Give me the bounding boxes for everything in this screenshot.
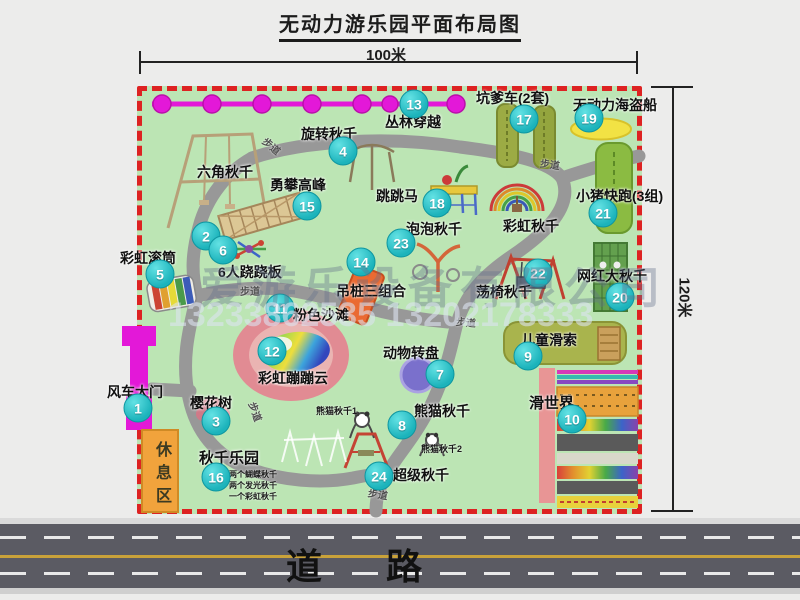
attraction-sublabel-16-1: 两个蝴蝶秋千: [229, 469, 277, 480]
attraction-label-12: 彩虹蹦蹦云: [258, 368, 328, 388]
attraction-label-24: 超级秋千: [393, 465, 449, 485]
walkway-label-3: 步道: [240, 283, 260, 298]
attraction-badge-9: 9: [514, 342, 543, 371]
attraction-label-8: 熊猫秋千: [414, 401, 470, 421]
attraction-badge-15: 15: [293, 192, 322, 221]
attraction-sublabel-8-1: 熊猫秋千1: [316, 404, 357, 417]
attraction-sublabel-16-3: 一个彩虹秋千: [229, 491, 277, 502]
title-bar: 无动力游乐园平面布局图: [0, 8, 800, 42]
attraction-label-11: 粉色沙滩: [293, 305, 349, 325]
attraction-badge-7: 7: [426, 360, 455, 389]
road-label: 道 路: [286, 538, 436, 590]
attraction-label-15: 勇攀高峰: [270, 175, 326, 195]
dimension-label-height: 120米: [675, 278, 696, 326]
dimension-line-top: [140, 61, 637, 63]
attraction-badge-17: 17: [510, 105, 539, 134]
road: 道 路: [0, 518, 800, 594]
attraction-label-20: 网红大秋千: [577, 266, 647, 286]
attraction-label-2: 六角秋千: [197, 162, 253, 182]
attraction-badge-12: 12: [258, 337, 287, 366]
page-title: 无动力游乐园平面布局图: [279, 8, 521, 42]
attraction-badge-10: 10: [558, 405, 587, 434]
attraction-badge-8: 8: [388, 411, 417, 440]
attraction-badge-22: 22: [524, 259, 553, 288]
attraction-badge-1: 1: [124, 394, 153, 423]
attraction-label-18: 跳跳马: [376, 186, 418, 206]
attraction-badge-11: 11: [266, 294, 295, 323]
attraction-badge-18: 18: [423, 189, 452, 218]
attraction-label-14: 吊桩三组合: [336, 281, 406, 301]
attraction-badge-6: 6: [209, 236, 238, 265]
attraction-label-7: 动物转盘: [383, 343, 439, 363]
attraction-label-17: 坑爹车(2套): [476, 88, 549, 108]
attraction-label-23: 泡泡秋千: [406, 219, 462, 239]
dimension-tick-top-left: [139, 51, 141, 74]
dimension-tick-right-top: [651, 86, 693, 88]
attraction-badge-23: 23: [387, 229, 416, 258]
walkway-label-2: 步道: [539, 155, 561, 173]
attraction-badge-13: 13: [400, 90, 429, 119]
attraction-sublabel-8-2: 熊猫秋千2: [421, 442, 462, 455]
dimension-tick-top-right: [636, 51, 638, 74]
attraction-badge-4: 4: [329, 137, 358, 166]
attraction-badge-16: 16: [202, 463, 231, 492]
rest-area-label: 休息区: [149, 441, 173, 510]
park-plan-image: 无动力游乐园平面布局图 100米 120米: [0, 0, 800, 600]
attraction-badge-19: 19: [575, 104, 604, 133]
attraction-label-彩虹秋千: 彩虹秋千: [503, 216, 559, 236]
walkway-label-4: 步道: [455, 313, 476, 330]
attraction-badge-20: 20: [606, 283, 635, 312]
attraction-label-22: 荡椅秋千: [476, 282, 532, 302]
dimension-tick-right-bottom: [651, 510, 693, 512]
attraction-badge-24: 24: [365, 462, 394, 491]
attraction-badge-14: 14: [347, 248, 376, 277]
attraction-badge-21: 21: [589, 199, 618, 228]
attraction-sublabel-16-2: 两个发光秋千: [229, 480, 277, 491]
attraction-badge-5: 5: [146, 260, 175, 289]
attraction-badge-3: 3: [202, 407, 231, 436]
attraction-label-21: 小猪快跑(3组): [576, 186, 663, 206]
attraction-label-6: 6人跷跷板: [218, 262, 282, 282]
